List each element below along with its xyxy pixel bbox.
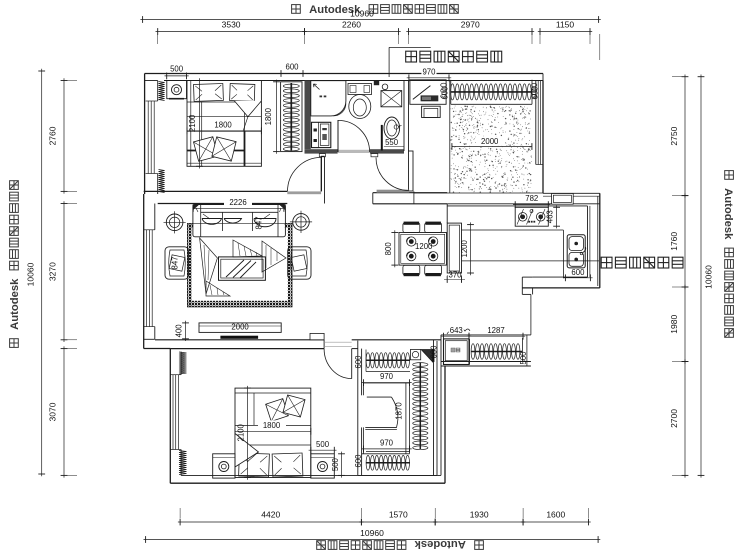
svg-text:1150: 1150	[556, 20, 575, 30]
svg-text:550: 550	[385, 138, 399, 147]
svg-text:1980: 1980	[669, 315, 679, 334]
svg-text:600: 600	[354, 355, 363, 369]
svg-text:2970: 2970	[461, 20, 480, 30]
svg-text:1570: 1570	[389, 510, 408, 520]
svg-text:600: 600	[430, 345, 439, 359]
svg-text:3530: 3530	[222, 20, 241, 30]
svg-text:Autodesk: Autodesk	[9, 278, 21, 330]
svg-text:970: 970	[380, 439, 394, 448]
svg-text:3070: 3070	[48, 402, 58, 421]
svg-text:2700: 2700	[669, 409, 679, 428]
svg-text:370: 370	[448, 270, 462, 279]
svg-text:463: 463	[546, 210, 555, 223]
svg-text:2000: 2000	[481, 137, 499, 146]
svg-text:1870: 1870	[395, 402, 404, 420]
svg-text:1600: 1600	[546, 510, 565, 520]
svg-text:2760: 2760	[48, 126, 58, 145]
svg-text:4420: 4420	[261, 510, 280, 520]
svg-text:10960: 10960	[350, 9, 374, 19]
svg-text:2100: 2100	[188, 114, 197, 132]
svg-text:500: 500	[316, 440, 330, 449]
svg-text:1800: 1800	[263, 421, 281, 430]
svg-text:600: 600	[441, 86, 450, 100]
svg-text:1800: 1800	[214, 120, 232, 129]
svg-text:Autodesk: Autodesk	[722, 188, 734, 240]
svg-text:10060: 10060	[26, 262, 36, 286]
svg-text:400: 400	[175, 324, 184, 338]
svg-text:600: 600	[571, 268, 585, 277]
svg-text:2260: 2260	[342, 20, 361, 30]
svg-text:970: 970	[380, 372, 394, 381]
svg-text:3270: 3270	[48, 262, 58, 281]
svg-text:500: 500	[170, 65, 184, 74]
svg-text:1800: 1800	[264, 107, 273, 125]
svg-text:2750: 2750	[669, 126, 679, 145]
svg-text:600: 600	[285, 63, 299, 72]
svg-text:10060: 10060	[704, 265, 714, 289]
svg-text:800: 800	[384, 242, 393, 256]
svg-text:500: 500	[331, 457, 340, 471]
svg-text:600: 600	[531, 86, 540, 100]
svg-text:643: 643	[450, 326, 463, 335]
svg-text:1287: 1287	[487, 326, 504, 335]
svg-text:1200: 1200	[415, 242, 433, 251]
svg-text:2000: 2000	[231, 322, 249, 331]
svg-text:782: 782	[525, 194, 538, 203]
svg-text:847: 847	[171, 256, 180, 269]
svg-text:970: 970	[422, 68, 436, 77]
svg-text:2226: 2226	[229, 198, 246, 207]
svg-text:1930: 1930	[470, 510, 489, 520]
svg-text:847: 847	[255, 216, 264, 229]
svg-text:2100: 2100	[237, 423, 246, 441]
svg-text:1760: 1760	[669, 232, 679, 251]
svg-text:500: 500	[519, 351, 528, 365]
svg-text:1200: 1200	[460, 239, 469, 257]
svg-text:10960: 10960	[360, 528, 384, 538]
svg-text:600: 600	[354, 454, 363, 468]
